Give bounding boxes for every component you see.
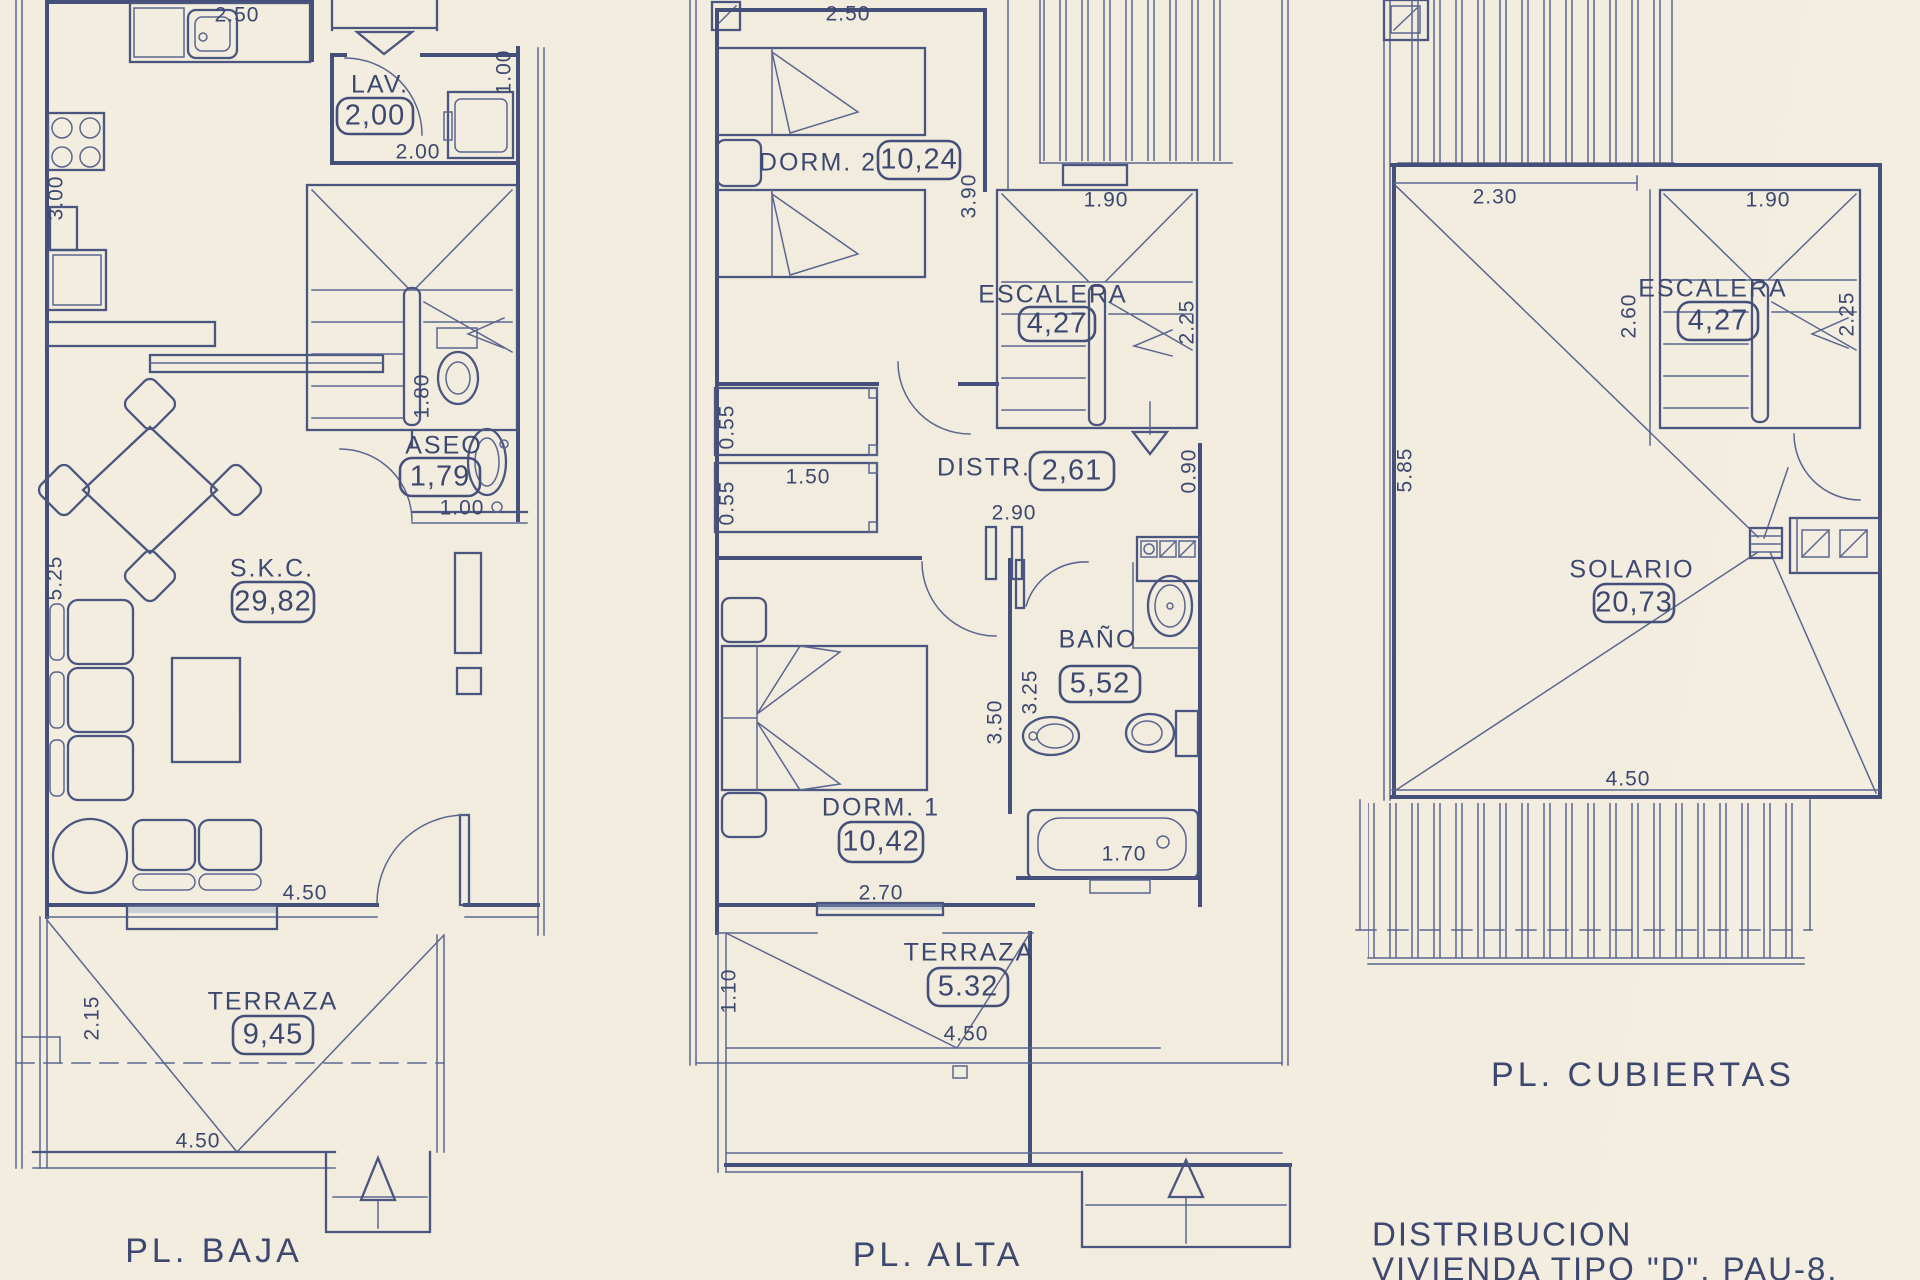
toilet-tank (1176, 711, 1198, 756)
door-swing-bano (1026, 562, 1088, 606)
kitchen-partition-wall (47, 322, 215, 346)
dim-distr-width: 2.90 (992, 502, 1037, 525)
dim-closet-b: 0.55 (716, 481, 739, 526)
party-wall-left (1384, 0, 1390, 800)
plan-title-baja: PL. BAJA (125, 1232, 303, 1270)
stairs-up-arrow-icon (361, 1158, 395, 1200)
dim-aseo-depth: 1.80 (411, 374, 434, 419)
door-swing-dorm2 (898, 362, 970, 434)
room-label-aseo: ASEO (405, 432, 482, 460)
terraza-baja (16, 917, 444, 1232)
room-label-skc: S.K.C. (230, 555, 314, 583)
stove (48, 113, 104, 170)
party-wall-left (16, 0, 22, 1168)
kitchen-counter-bar (150, 355, 383, 372)
porch-walls (1008, 0, 1040, 190)
dim-left-depth: 5.85 (1394, 448, 1417, 493)
stair-stringer (1752, 282, 1768, 422)
area-aseo: 1,79 (410, 461, 470, 493)
washing-machine (444, 92, 513, 158)
room-label-distr: DISTR. (937, 454, 1031, 482)
floorplan-drawing: 2.50 3.00 LAV. 2,00 2.00 1.00 1.80 ASEO … (0, 0, 1920, 1280)
area-escalera-roof: 4,27 (1688, 305, 1748, 337)
bidet (1023, 717, 1079, 755)
dim-bano-outer: 3.50 (984, 700, 1007, 745)
salon-terrace-wall (47, 815, 538, 929)
closets (715, 388, 877, 532)
roof-hip-ridges (1396, 186, 1876, 793)
room-label-escalera-roof: ESCALERA (1638, 275, 1787, 303)
dim-salon-depth: 5.25 (44, 556, 67, 601)
plan-cubiertas: 2.30 2.60 1.90 ESCALERA 4,27 2.25 5.85 S… (1356, 0, 1880, 1280)
dim-aseo-width: 1.00 (440, 497, 485, 520)
pergola-bottom (1356, 800, 1812, 964)
stair-direction-arrow (1134, 330, 1172, 356)
room-label-solario: SOLARIO (1569, 556, 1694, 584)
coffee-table (172, 658, 240, 762)
area-bano: 5,52 (1070, 668, 1130, 700)
fridge (48, 250, 106, 310)
dim-salon-width: 4.50 (283, 882, 328, 905)
round-side-table (53, 819, 127, 893)
room-label-dorm2: DORM. 2 (759, 149, 877, 177)
aseo-toilet (437, 328, 478, 404)
room-label-dorm1: DORM. 1 (822, 794, 940, 822)
dim-esc-depth: 2.25 (1176, 300, 1199, 345)
room-label-bano: BAÑO (1059, 625, 1138, 654)
room-label-terraza: TERRAZA (208, 988, 339, 1016)
dim-lav-width: 2.00 (396, 141, 441, 164)
stairs-down-arrow-icon (1133, 432, 1167, 454)
dim-terraza-width: 4.50 (176, 1130, 221, 1153)
party-wall-left (690, 0, 696, 1065)
dim-kitchen-width: 2.50 (215, 4, 260, 27)
area-escalera: 4,27 (1027, 308, 1087, 340)
area-dorm1: 10,42 (842, 826, 920, 858)
area-solario: 20,73 (1595, 587, 1673, 619)
nightstand (722, 598, 766, 642)
toilet (1126, 714, 1174, 752)
dim-esc-width: 1.90 (1084, 189, 1129, 212)
dim-terraza-depth-alta: 1.10 (718, 969, 741, 1014)
room-label-terraza-alta: TERRAZA (904, 939, 1035, 967)
dim-bano-inner: 3.25 (1019, 670, 1042, 715)
entry-arrow-icon (357, 32, 412, 54)
dim-lav-depth: 1.00 (493, 50, 516, 95)
staircase (1650, 190, 1860, 445)
roof-window (1790, 518, 1880, 573)
party-wall-right (538, 48, 544, 935)
tv-unit (455, 553, 481, 694)
roof-inner-lines (1392, 176, 1880, 790)
pergola-hatch-top (1400, 0, 1672, 163)
plan-title-cubiertas: PL. CUBIERTAS (1491, 1056, 1795, 1094)
dim-kitchen-depth: 3.00 (45, 176, 68, 221)
plan-title-alta: PL. ALTA (853, 1236, 1024, 1274)
title-block-line2: VIVIENDA TIPO "D". PAU-8. (1372, 1251, 1838, 1280)
bed-single-2 (717, 190, 925, 277)
dorm1-door-frame (922, 527, 1022, 636)
door-knob (492, 502, 502, 512)
room-label-escalera: ESCALERA (978, 281, 1127, 309)
roof-outline (1392, 165, 1880, 797)
plan-alta: 2.50 DORM. 2 10,24 3.90 1.90 ESCALERA 4,… (690, 0, 1290, 1274)
dim-bath-length: 1.70 (1102, 843, 1147, 866)
area-dorm2: 10,24 (880, 144, 958, 176)
faucet-icon (199, 33, 207, 41)
room-label-lav: LAV. (351, 71, 409, 99)
dim-terraza-depth: 2.15 (81, 996, 104, 1041)
drain (953, 1066, 967, 1078)
bed-single-1 (717, 48, 925, 135)
title-block-line1: DISTRIBUCION (1372, 1216, 1633, 1253)
dim-dorm2-width: 2.50 (826, 3, 871, 26)
door-leaf (460, 815, 469, 905)
bath-niche-window (1137, 537, 1200, 581)
dim-terraza-width-alta: 4.50 (944, 1023, 989, 1046)
door-swing (377, 815, 465, 903)
area-skc: 29,82 (234, 586, 312, 618)
bath-window (1090, 880, 1150, 893)
dim-dorm1-width: 2.70 (859, 882, 904, 905)
door-swing-roof (1794, 434, 1860, 500)
dim-bottom-width: 4.50 (1606, 768, 1651, 791)
dim-distr-depth: 0.90 (1178, 449, 1201, 494)
dim-esc-width-roof: 1.90 (1746, 189, 1791, 212)
area-terraza: 9,45 (243, 1019, 303, 1051)
area-distr: 2,61 (1042, 455, 1102, 487)
party-wall-right (1282, 0, 1288, 1065)
area-terraza-alta: 5.32 (938, 971, 998, 1003)
nightstand (717, 140, 761, 186)
dim-top-width: 2.30 (1473, 186, 1518, 209)
area-lav: 2,00 (345, 100, 405, 132)
dim-esc-side: 2.60 (1618, 294, 1641, 339)
nightstand (722, 793, 766, 837)
dim-dorm2-depth: 3.90 (958, 174, 981, 219)
plan-baja: 2.50 3.00 LAV. 2,00 2.00 1.00 1.80 ASEO … (16, 0, 544, 1270)
sofa (50, 600, 133, 800)
bath-drain (1157, 836, 1169, 848)
porch-band (1063, 165, 1127, 185)
dim-esc-depth-roof: 2.25 (1836, 292, 1859, 337)
armchairs (133, 820, 261, 890)
dim-closet-width: 1.50 (786, 466, 831, 489)
blueprint-sheet: 2.50 3.00 LAV. 2,00 2.00 1.00 1.80 ASEO … (0, 0, 1920, 1280)
pergola-hatch (1042, 0, 1230, 161)
dim-closet-a: 0.55 (716, 405, 739, 450)
